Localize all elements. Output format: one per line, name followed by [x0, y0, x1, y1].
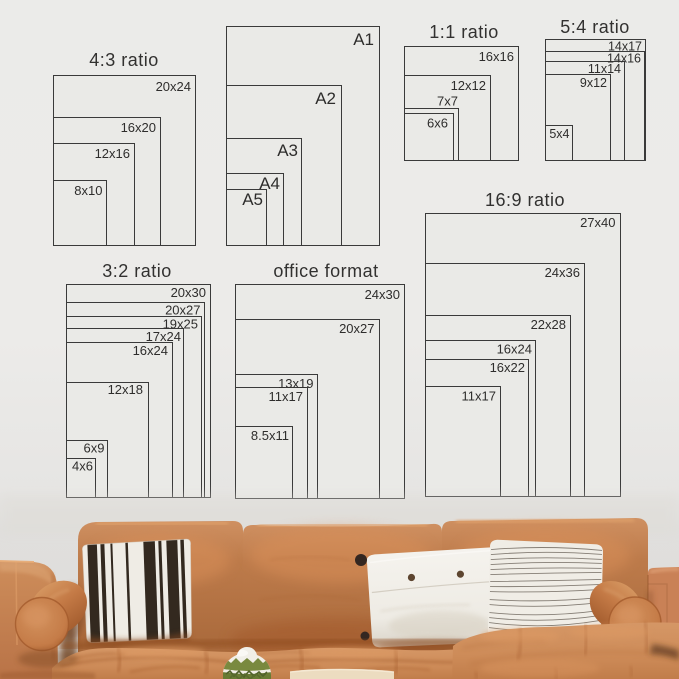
svg-text:11x17: 11x17	[269, 389, 303, 404]
svg-text:5:4 ratio: 5:4 ratio	[560, 17, 630, 37]
svg-text:7x7: 7x7	[437, 94, 458, 109]
svg-text:16x16: 16x16	[479, 49, 514, 64]
svg-text:24x36: 24x36	[545, 265, 580, 280]
svg-text:9x12: 9x12	[580, 76, 607, 90]
svg-text:A2: A2	[315, 89, 336, 108]
svg-text:24x30: 24x30	[365, 287, 400, 302]
svg-text:6x6: 6x6	[427, 116, 448, 131]
svg-text:A5: A5	[242, 190, 263, 209]
svg-text:16:9 ratio: 16:9 ratio	[485, 190, 565, 210]
svg-text:5x4: 5x4	[549, 127, 569, 141]
svg-text:20x27: 20x27	[165, 303, 200, 318]
svg-text:A3: A3	[277, 141, 298, 160]
svg-text:12x12: 12x12	[451, 78, 486, 93]
svg-text:16x24: 16x24	[497, 342, 532, 357]
svg-text:8.5x11: 8.5x11	[251, 428, 289, 443]
svg-text:12x16: 12x16	[95, 146, 130, 161]
svg-text:17x24: 17x24	[146, 329, 181, 344]
svg-text:20x30: 20x30	[171, 285, 206, 300]
svg-text:20x27: 20x27	[339, 321, 374, 336]
svg-text:16x22: 16x22	[490, 360, 525, 375]
svg-text:office format: office format	[273, 261, 378, 281]
svg-text:12x18: 12x18	[108, 382, 143, 397]
svg-text:8x10: 8x10	[74, 183, 102, 198]
svg-text:4x6: 4x6	[72, 459, 93, 474]
svg-text:20x24: 20x24	[156, 79, 191, 94]
svg-text:A1: A1	[353, 30, 374, 49]
svg-text:11x14: 11x14	[588, 62, 621, 76]
svg-text:3:2 ratio: 3:2 ratio	[102, 261, 172, 281]
svg-text:6x9: 6x9	[84, 441, 105, 456]
svg-text:4:3 ratio: 4:3 ratio	[89, 50, 159, 70]
svg-text:22x28: 22x28	[531, 317, 566, 332]
svg-text:11x17: 11x17	[462, 389, 496, 404]
svg-text:27x40: 27x40	[580, 215, 615, 230]
svg-text:16x24: 16x24	[133, 343, 168, 358]
svg-text:1:1 ratio: 1:1 ratio	[429, 22, 499, 42]
svg-text:16x20: 16x20	[121, 120, 156, 135]
